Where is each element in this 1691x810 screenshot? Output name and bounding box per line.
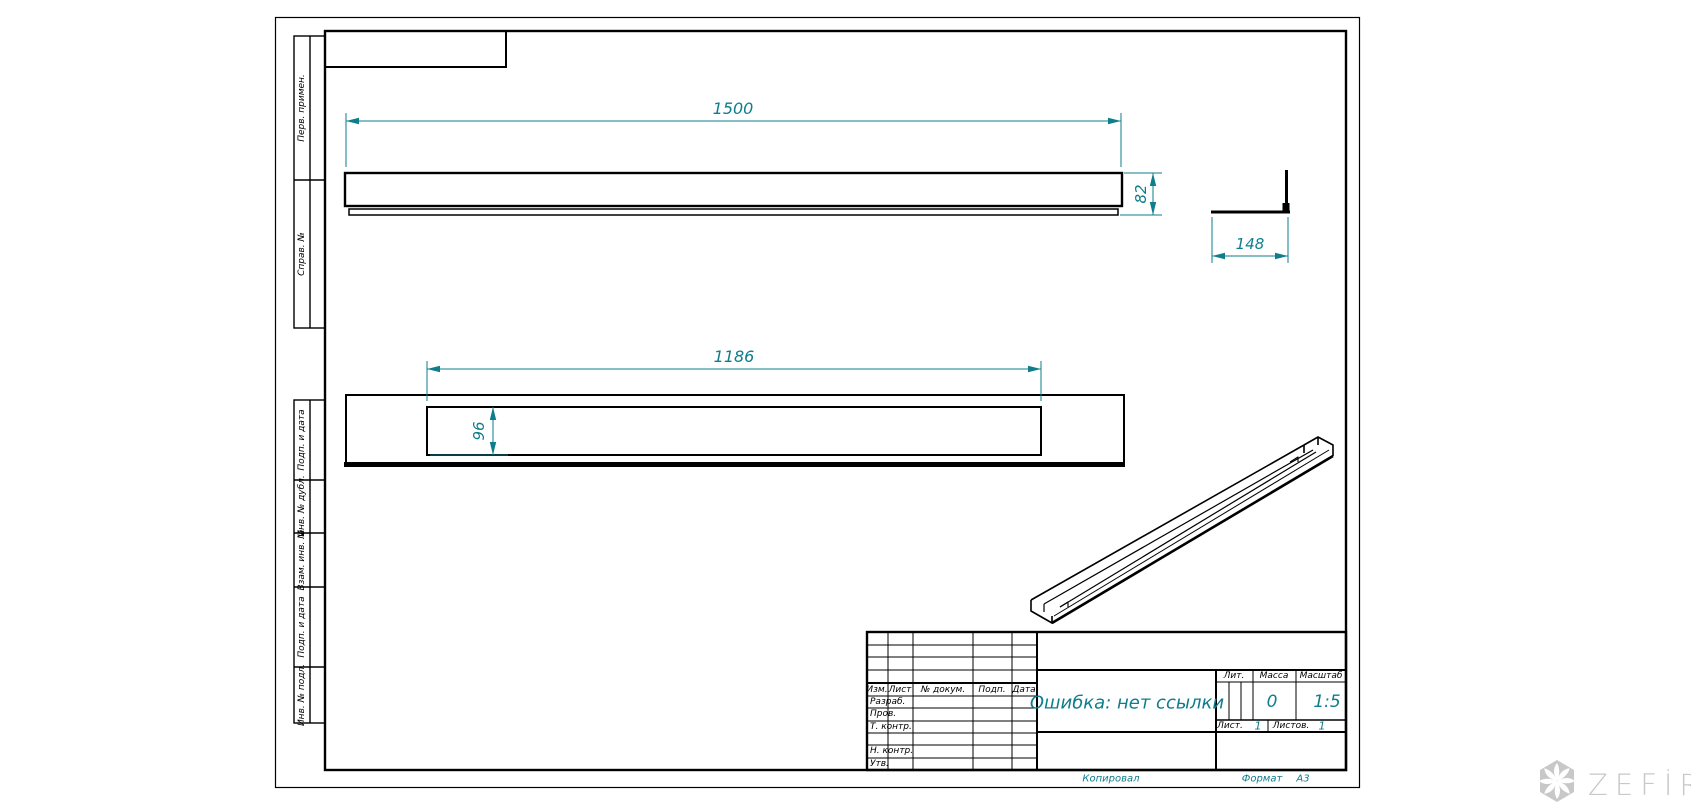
view-side (345, 173, 1122, 215)
dim-top-height-value: 82 (1132, 184, 1150, 203)
dim-148: 148 (1212, 217, 1288, 263)
sheet-border (276, 18, 1360, 788)
dim-96: 96 (430, 407, 508, 455)
dim-1500: 1500 (346, 99, 1121, 167)
margin-boxes (294, 36, 325, 723)
dim-mid-depth-value: 96 (470, 421, 488, 440)
view-bracket (1211, 170, 1290, 213)
dim-bracket-width-value: 148 (1236, 235, 1265, 253)
dim-mid-length-value: 1186 (714, 347, 755, 366)
drawing-sheet: { "margin_labels": ["Перв. примен.", "Сп… (0, 0, 1691, 810)
cad-drawing-canvas: 1500 82 148 (0, 0, 1691, 810)
dim-82: 82 (1120, 173, 1162, 215)
zefire-logo-icon (1539, 760, 1575, 802)
zefire-watermark-text: ZEFİRE (1588, 768, 1691, 802)
title-block-grid (867, 632, 1346, 770)
dim-1186: 1186 (427, 347, 1041, 401)
dim-top-length-value: 1500 (713, 99, 754, 118)
